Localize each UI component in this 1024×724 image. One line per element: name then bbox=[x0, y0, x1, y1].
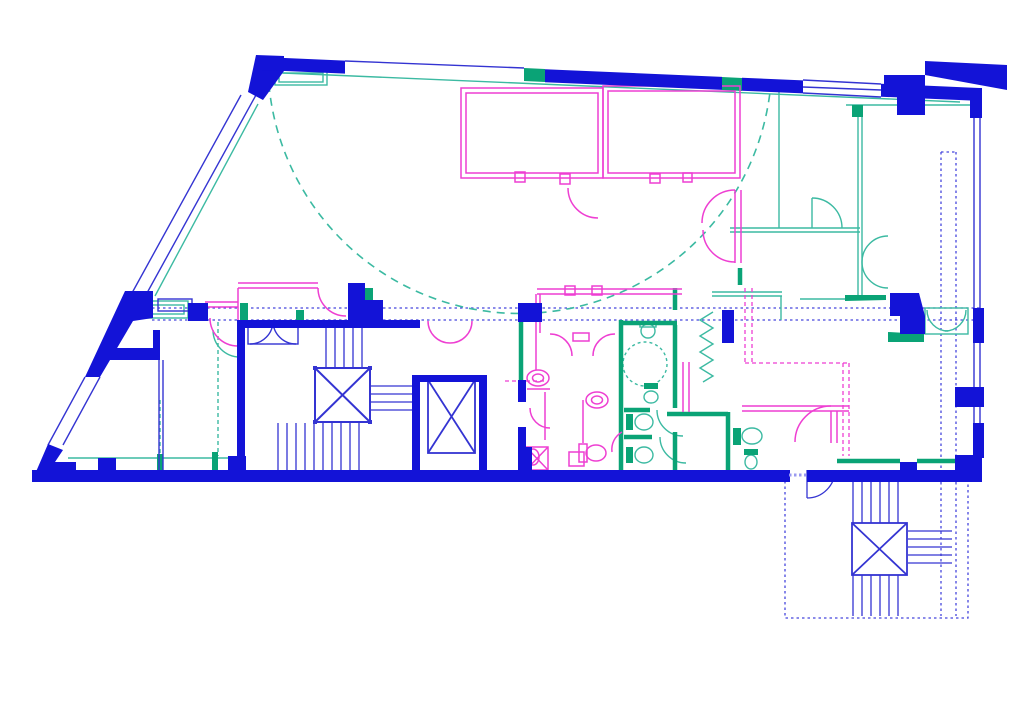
layer-blue-lines bbox=[48, 61, 980, 470]
wall-block bbox=[955, 387, 984, 407]
door-swing bbox=[593, 334, 615, 356]
stair-run-upper bbox=[326, 328, 362, 368]
door-swing bbox=[450, 321, 472, 343]
interior-wall bbox=[412, 375, 487, 382]
door-swing bbox=[862, 262, 888, 288]
corner-dot bbox=[368, 420, 372, 424]
elevator-x-box bbox=[428, 380, 475, 453]
window-edge bbox=[147, 95, 256, 293]
room-outline-inner bbox=[608, 91, 735, 173]
stair-run-side bbox=[370, 386, 412, 410]
door-swing bbox=[812, 198, 842, 228]
wall-block bbox=[973, 423, 984, 458]
toilet-icon bbox=[586, 445, 606, 461]
toilet-icon bbox=[644, 391, 658, 403]
toilet-icon bbox=[635, 447, 653, 463]
floor-box bbox=[569, 452, 584, 466]
column bbox=[884, 75, 925, 115]
toilet-icon bbox=[742, 428, 762, 444]
door-swing bbox=[703, 230, 735, 262]
interior-wall bbox=[237, 320, 420, 328]
floor-plan-page bbox=[0, 0, 1024, 724]
wall-tab bbox=[560, 174, 570, 184]
layer-structural-walls bbox=[32, 55, 1007, 482]
corner-dot bbox=[313, 366, 317, 370]
door-swing bbox=[318, 288, 346, 316]
large-dashed-arc bbox=[268, 70, 770, 313]
accessible-turning-circle bbox=[623, 342, 667, 386]
window-edge bbox=[803, 80, 881, 84]
interior-wall bbox=[412, 375, 420, 472]
external-stair-treads bbox=[853, 482, 952, 616]
wall-block bbox=[970, 88, 982, 118]
wall-marker bbox=[212, 452, 218, 471]
cistern bbox=[733, 428, 741, 445]
toilet-icon bbox=[635, 414, 653, 430]
window-edge bbox=[803, 87, 881, 90]
wall-marker bbox=[524, 68, 545, 82]
top-right-cap bbox=[925, 61, 1007, 90]
column bbox=[518, 303, 542, 322]
toilet-icon bbox=[745, 455, 757, 469]
cistern bbox=[626, 414, 633, 430]
bottom-wall bbox=[32, 470, 790, 482]
wall-block bbox=[98, 458, 116, 470]
top-wall bbox=[742, 78, 803, 94]
window-edge bbox=[345, 61, 524, 68]
cistern bbox=[626, 447, 633, 463]
interior-wall bbox=[518, 427, 526, 472]
wall-marker bbox=[157, 454, 163, 472]
cistern bbox=[644, 383, 658, 389]
wall-block bbox=[900, 462, 917, 480]
cistern bbox=[744, 449, 758, 455]
top-wall bbox=[545, 69, 722, 90]
wall-tab bbox=[573, 333, 589, 341]
room-outline bbox=[461, 88, 603, 178]
door-swing bbox=[428, 321, 450, 343]
corner-block bbox=[955, 455, 982, 482]
window-edge bbox=[63, 377, 100, 445]
wall-marker bbox=[240, 303, 248, 321]
elevator-x-box bbox=[852, 523, 907, 575]
window-edge bbox=[48, 377, 85, 445]
corner-dot bbox=[368, 366, 372, 370]
layer-teal-lines bbox=[68, 70, 975, 469]
sink-icon bbox=[641, 324, 655, 338]
sink-icon-inner bbox=[592, 396, 603, 404]
interior-wall bbox=[518, 380, 526, 402]
column bbox=[188, 303, 208, 321]
elevator-x-box bbox=[315, 368, 370, 422]
window-edge bbox=[132, 95, 241, 293]
room-outline-inner bbox=[466, 93, 598, 173]
door-frame bbox=[925, 308, 968, 334]
door-swing bbox=[568, 188, 598, 218]
sink-icon bbox=[586, 392, 608, 408]
wall-marker bbox=[296, 310, 304, 321]
column bbox=[890, 293, 925, 334]
diagonal-wall-block bbox=[85, 291, 153, 377]
wall-marker bbox=[722, 77, 742, 91]
door-swing bbox=[702, 190, 735, 223]
door-swing bbox=[210, 318, 238, 346]
door-swing bbox=[862, 236, 888, 262]
wall-marker bbox=[845, 295, 886, 301]
diagonal-inner-line bbox=[155, 104, 258, 296]
wall-marker bbox=[852, 105, 863, 117]
sink-icon bbox=[527, 370, 549, 386]
room-outline bbox=[603, 86, 740, 178]
interior-wall bbox=[237, 328, 245, 472]
door-swing bbox=[530, 408, 550, 428]
layer-magenta-interior bbox=[205, 86, 980, 470]
floor-plan-canvas bbox=[0, 0, 1024, 724]
door-swing bbox=[550, 334, 572, 356]
interior-wall bbox=[107, 348, 160, 360]
column bbox=[722, 310, 734, 343]
stair-run-lower bbox=[278, 423, 359, 470]
layer-swing-arc bbox=[268, 70, 770, 313]
interior-wall bbox=[153, 330, 160, 348]
zigzag-shelf bbox=[700, 312, 713, 382]
wall-block bbox=[973, 308, 984, 343]
interior-wall bbox=[479, 375, 487, 472]
corner-dot bbox=[313, 420, 317, 424]
